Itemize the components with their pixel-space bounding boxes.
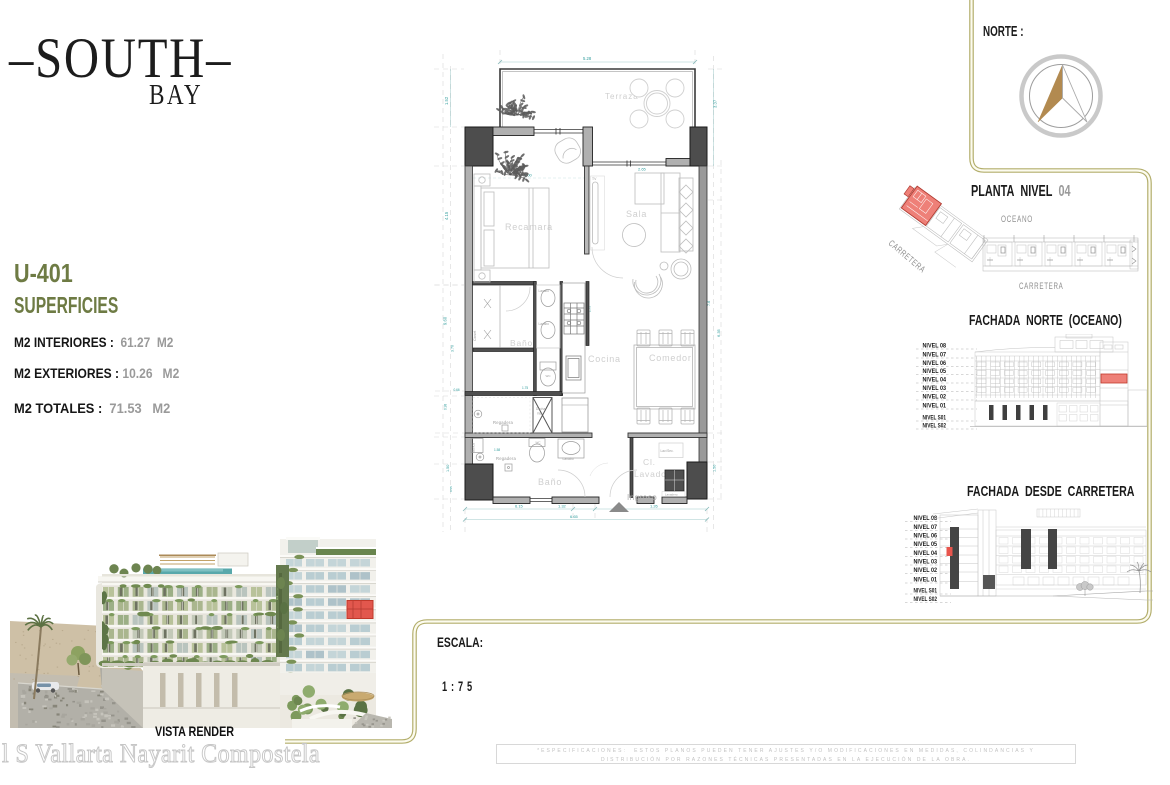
- svg-text:NIVEL S02: NIVEL S02: [914, 596, 938, 603]
- svg-text:NIVEL 07: NIVEL 07: [923, 352, 947, 359]
- svg-text:NIVEL 04: NIVEL 04: [923, 377, 947, 384]
- svg-text:Closet: Closet: [473, 331, 477, 341]
- svg-text:1.75: 1.75: [522, 386, 528, 390]
- svg-text:Baño: Baño: [538, 477, 562, 487]
- svg-text:3.37: 3.37: [713, 99, 718, 108]
- svg-text:WC: WC: [546, 374, 552, 378]
- svg-text:Lavabo: Lavabo: [539, 322, 550, 326]
- svg-text:Regadera: Regadera: [493, 420, 513, 425]
- svg-text:Lavabo: Lavabo: [563, 457, 574, 461]
- svg-text:Cocina: Cocina: [588, 354, 621, 364]
- svg-text:NIVEL 05: NIVEL 05: [923, 368, 947, 375]
- svg-text:NIVEL 06: NIVEL 06: [914, 533, 938, 540]
- svg-text:NIVEL 06: NIVEL 06: [923, 360, 947, 367]
- svg-text:NIVEL S01: NIVEL S01: [914, 588, 938, 595]
- svg-text:0.66: 0.66: [454, 388, 460, 392]
- svg-text:0.98: 0.98: [444, 404, 448, 410]
- svg-text:Ducha: Ducha: [536, 407, 545, 411]
- svg-text:1.50: 1.50: [446, 465, 450, 472]
- svg-text:0.55: 0.55: [449, 486, 453, 492]
- svg-text:2.65: 2.65: [638, 167, 647, 172]
- svg-text:1.50: 1.50: [713, 465, 717, 472]
- svg-text:Sala: Sala: [626, 209, 647, 219]
- svg-text:Comedor: Comedor: [649, 353, 692, 363]
- svg-text:1.26: 1.26: [650, 504, 659, 509]
- svg-text:NIVEL 07: NIVEL 07: [914, 524, 938, 531]
- svg-text:1.32: 1.32: [558, 504, 567, 509]
- svg-text:NIVEL S01: NIVEL S01: [923, 415, 947, 422]
- svg-text:Ingreso: Ingreso: [627, 493, 657, 502]
- svg-text:6.15: 6.15: [515, 504, 524, 509]
- svg-text:3.70: 3.70: [451, 345, 455, 352]
- svg-text:9.60: 9.60: [443, 316, 448, 325]
- svg-text:NIVEL 03: NIVEL 03: [914, 559, 938, 566]
- svg-text:Lavado: Lavado: [634, 469, 667, 479]
- svg-text:Cl.: Cl.: [643, 457, 656, 467]
- svg-text:4.15: 4.15: [444, 211, 449, 220]
- svg-text:7.6: 7.6: [707, 301, 711, 306]
- svg-text:Baño: Baño: [510, 338, 533, 348]
- svg-text:Regadera: Regadera: [496, 456, 516, 461]
- svg-text:NIVEL S02: NIVEL S02: [923, 423, 947, 430]
- svg-text:6.35: 6.35: [716, 328, 721, 337]
- svg-text:inst.: inst.: [537, 412, 543, 416]
- svg-text:Lavadero: Lavadero: [665, 493, 678, 497]
- svg-text:NIVEL 03: NIVEL 03: [923, 385, 947, 392]
- svg-text:Lav./Sec.: Lav./Sec.: [661, 449, 674, 453]
- svg-text:NIVEL 02: NIVEL 02: [914, 567, 938, 574]
- svg-text:Banca: Banca: [472, 443, 476, 452]
- svg-text:NIVEL 04: NIVEL 04: [914, 550, 938, 557]
- svg-text:6.65: 6.65: [570, 514, 579, 519]
- svg-text:5.28: 5.28: [583, 56, 592, 61]
- svg-text:1.52: 1.52: [444, 96, 449, 105]
- svg-text:NIVEL 08: NIVEL 08: [923, 343, 947, 350]
- svg-text:NIVEL 02: NIVEL 02: [923, 394, 947, 401]
- svg-text:1.58: 1.58: [494, 448, 500, 452]
- svg-text:NIVEL 01: NIVEL 01: [914, 577, 938, 584]
- svg-text:NIVEL 01: NIVEL 01: [923, 403, 947, 410]
- svg-text:NIVEL 05: NIVEL 05: [914, 541, 938, 548]
- svg-text:TV: TV: [592, 177, 597, 181]
